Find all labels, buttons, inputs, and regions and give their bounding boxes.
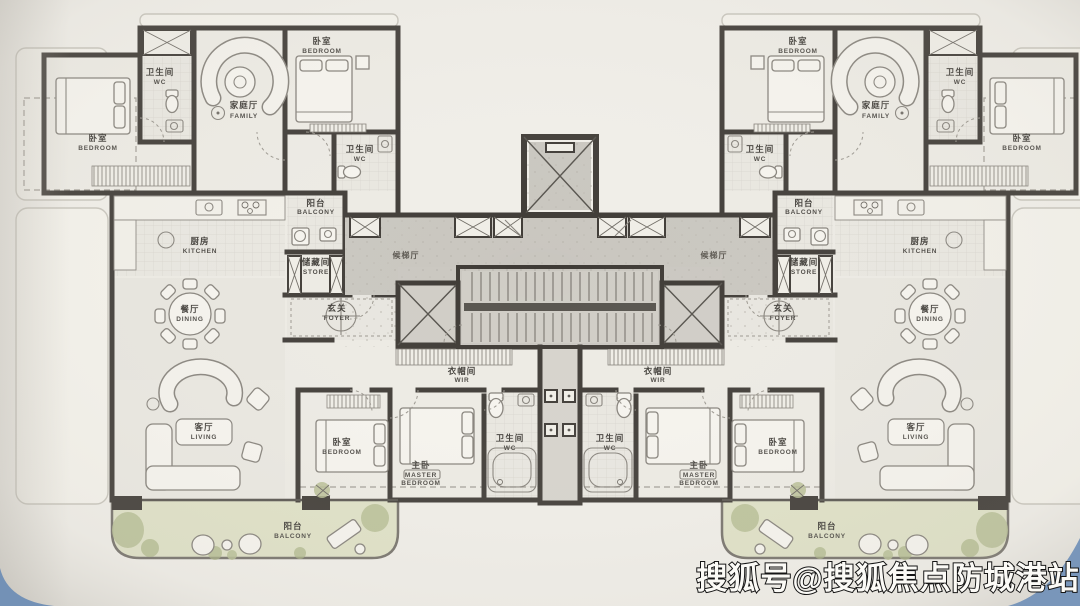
label-store-en-left: STORE (303, 269, 329, 276)
label-foyer-en-right: FOYER (770, 315, 796, 322)
label-wc-master-en-left: WC (504, 445, 516, 452)
label-service-balcony-zh-left: 阳台 (306, 198, 325, 208)
label-foyer-zh-right: 玄关 (773, 303, 792, 313)
label-wir-zh-right: 衣帽间 (644, 366, 673, 376)
label-dining-zh-left: 餐厅 (179, 304, 199, 314)
label-bedroom-topleft-zh-right: 卧室 (1012, 133, 1031, 143)
label-bedroom-bottom-en-right: BEDROOM (758, 449, 798, 456)
label-service-balcony-zh-right: 阳台 (794, 198, 813, 208)
label-store-zh-left: 储藏间 (301, 257, 331, 267)
label-wc-master-en-right: WC (604, 445, 616, 452)
label-wc-top-en-right: WC (954, 79, 966, 86)
label-dining-en-right: DINING (916, 316, 944, 323)
label-bedroom-bottom-zh-left: 卧室 (332, 437, 351, 447)
elevator-icon (398, 283, 458, 345)
edge-shadow (0, 0, 70, 606)
label-bedroom-bottom-zh-right: 卧室 (768, 437, 787, 447)
label-master-en1-left: MASTER (405, 472, 437, 479)
label-master-zh-right: 主卧 (689, 460, 708, 470)
label-master-en2-left: BEDROOM (401, 480, 441, 487)
label-bedroom-topleft-en-right: BEDROOM (1002, 145, 1042, 152)
label-kitchen-zh-right: 厨房 (910, 236, 929, 246)
label-bedroom-topleft-en-left: BEDROOM (78, 145, 118, 152)
label-master-en2-right: BEDROOM (679, 480, 719, 487)
label-kitchen-en-left: KITCHEN (183, 248, 218, 255)
label-living-zh-right: 客厅 (905, 422, 925, 432)
label-wc-mid-en-left: WC (354, 156, 366, 163)
label-bedroom-bottom-en-left: BEDROOM (322, 449, 362, 456)
label-living-en-left: LIVING (191, 434, 217, 441)
label-family-en-right: FAMILY (862, 113, 890, 120)
label-bedroom-top-zh-right: 卧室 (788, 36, 807, 46)
label-living-zh-left: 客厅 (193, 422, 213, 432)
label-foyer-en-left: FOYER (324, 315, 350, 322)
label-dining-zh-right: 餐厅 (919, 304, 939, 314)
label-wc-top-zh-left: 卫生间 (146, 67, 175, 77)
label-wir-en-right: WIR (650, 377, 665, 384)
label-dining-en-left: DINING (176, 316, 204, 323)
label-wir-zh-left: 衣帽间 (448, 366, 477, 376)
label-balcony-main-en-right: BALCONY (808, 533, 846, 540)
label-bedroom-top-en-left: BEDROOM (302, 48, 342, 55)
label-store-zh-right: 储藏间 (789, 257, 819, 267)
label-store-en-right: STORE (791, 269, 817, 276)
label-master-zh-left: 主卧 (411, 460, 430, 470)
label-wc-top-zh-right: 卫生间 (946, 67, 975, 77)
floor-plan-drawing: 卧室卧室BEDROOMBEDROOM卫生间卫生间WCWC家庭厅家庭厅FAMILY… (0, 0, 1080, 606)
label-wc-top-en-left: WC (154, 79, 166, 86)
label-elevator-lobby-zh-right: 候梯厅 (701, 250, 728, 260)
watermark-text: 搜狐号@搜狐焦点防城港站 (696, 561, 1079, 596)
label-bedroom-topleft-zh-left: 卧室 (88, 133, 107, 143)
label-bedroom-top-zh-left: 卧室 (312, 36, 331, 46)
floor-plan-photo: 卧室卧室BEDROOMBEDROOM卫生间卫生间WCWC家庭厅家庭厅FAMILY… (0, 0, 1080, 606)
label-wc-master-zh-right: 卫生间 (596, 433, 625, 443)
label-service-balcony-en-left: BALCONY (297, 209, 335, 216)
label-foyer-zh-left: 玄关 (327, 303, 346, 313)
label-wir-en-left: WIR (454, 377, 469, 384)
label-wc-mid-zh-left: 卫生间 (346, 144, 375, 154)
label-family-en-left: FAMILY (230, 113, 258, 120)
label-service-balcony-en-right: BALCONY (785, 209, 823, 216)
elevator-icon (662, 283, 722, 345)
label-living-en-right: LIVING (903, 434, 929, 441)
label-balcony-main-en-left: BALCONY (274, 533, 312, 540)
label-wc-mid-en-right: WC (754, 156, 766, 163)
label-wc-mid-zh-right: 卫生间 (746, 144, 775, 154)
label-kitchen-en-right: KITCHEN (903, 248, 938, 255)
label-balcony-main-zh-right: 阳台 (817, 521, 836, 531)
label-kitchen-zh-left: 厨房 (190, 236, 209, 246)
label-family-zh-right: 家庭厅 (862, 100, 891, 110)
label-bedroom-top-en-right: BEDROOM (778, 48, 818, 55)
staircase-icon (444, 267, 676, 347)
label-elevator-lobby-zh-left: 候梯厅 (393, 250, 420, 260)
label-balcony-main-zh-left: 阳台 (283, 521, 302, 531)
label-master-en1-right: MASTER (683, 472, 715, 479)
label-wc-master-zh-left: 卫生间 (496, 433, 525, 443)
label-family-zh-left: 家庭厅 (230, 100, 259, 110)
